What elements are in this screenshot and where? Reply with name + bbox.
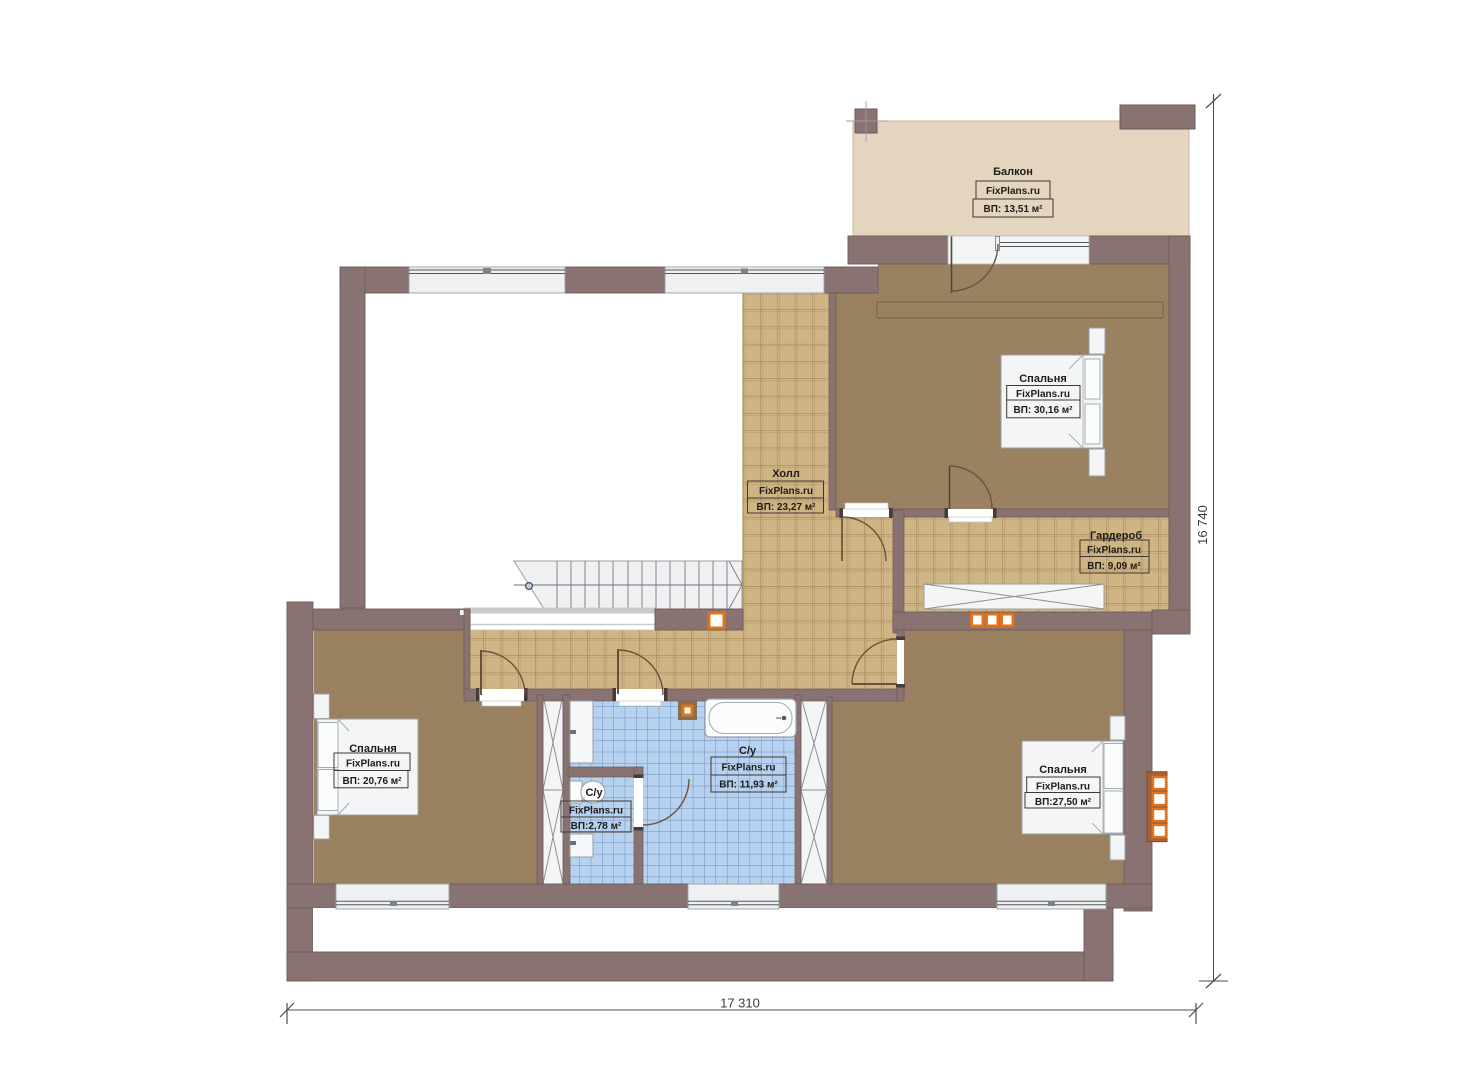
svg-text:ВП:2,78 м²: ВП:2,78 м² bbox=[571, 821, 622, 832]
svg-text:FixPlans.ru: FixPlans.ru bbox=[986, 186, 1040, 197]
svg-text:С/у: С/у bbox=[739, 745, 757, 757]
svg-text:Спальня: Спальня bbox=[1039, 764, 1087, 776]
svg-text:ВП: 30,16 м²: ВП: 30,16 м² bbox=[1013, 405, 1073, 416]
svg-text:FixPlans.ru: FixPlans.ru bbox=[346, 759, 400, 770]
svg-text:Спальня: Спальня bbox=[1019, 373, 1067, 385]
svg-text:Холл: Холл bbox=[772, 468, 800, 480]
svg-text:С/у: С/у bbox=[585, 787, 603, 799]
svg-text:ВП: 13,51 м²: ВП: 13,51 м² bbox=[983, 204, 1043, 215]
svg-text:ВП: 11,93 м²: ВП: 11,93 м² bbox=[719, 780, 778, 791]
svg-text:ВП: 20,76 м²: ВП: 20,76 м² bbox=[342, 776, 402, 787]
svg-text:ВП: 9,09 м²: ВП: 9,09 м² bbox=[1087, 561, 1141, 572]
svg-text:FixPlans.ru: FixPlans.ru bbox=[759, 486, 813, 497]
svg-text:ВП: 23,27 м²: ВП: 23,27 м² bbox=[756, 502, 816, 513]
svg-text:FixPlans.ru: FixPlans.ru bbox=[569, 806, 623, 817]
svg-text:FixPlans.ru: FixPlans.ru bbox=[1036, 782, 1090, 793]
svg-text:17 310: 17 310 bbox=[720, 996, 760, 1011]
svg-text:ВП:27,50 м²: ВП:27,50 м² bbox=[1035, 797, 1092, 808]
svg-text:16 740: 16 740 bbox=[1195, 505, 1210, 545]
svg-text:FixPlans.ru: FixPlans.ru bbox=[722, 763, 776, 774]
svg-text:Балкон: Балкон bbox=[993, 166, 1033, 178]
svg-text:FixPlans.ru: FixPlans.ru bbox=[1016, 389, 1070, 400]
svg-text:FixPlans.ru: FixPlans.ru bbox=[1087, 545, 1141, 556]
